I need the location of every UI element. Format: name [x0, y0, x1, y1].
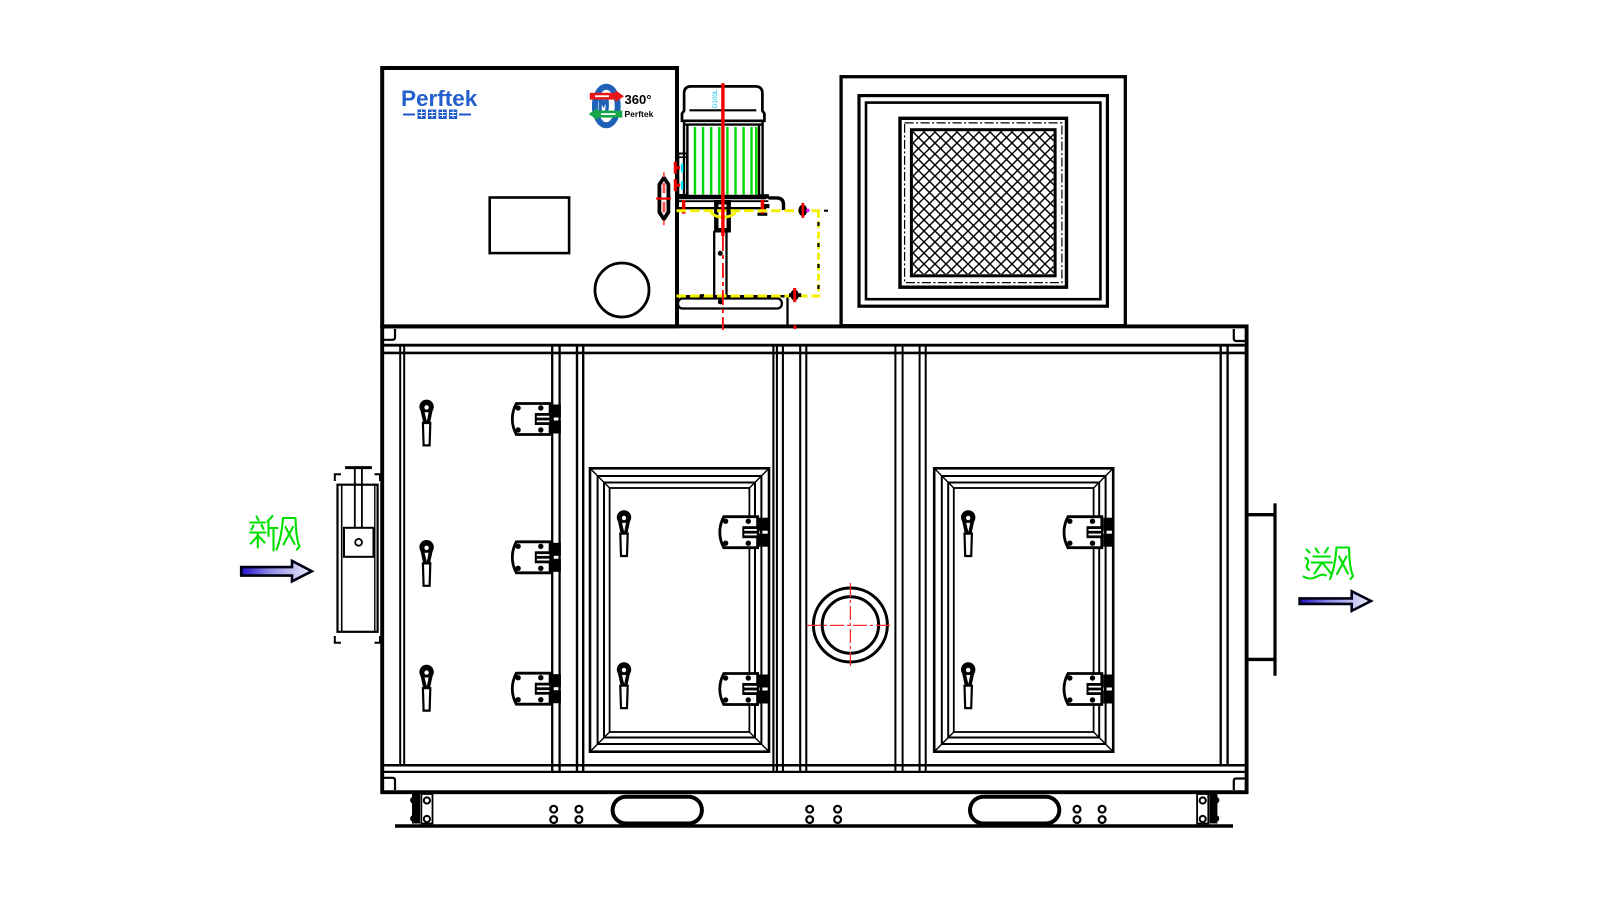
svg-text:Perftek: Perftek: [625, 109, 654, 119]
svg-text:D100L: D100L: [712, 89, 719, 108]
svg-text:360°: 360°: [625, 92, 652, 107]
svg-text:Perftek: Perftek: [401, 86, 478, 111]
